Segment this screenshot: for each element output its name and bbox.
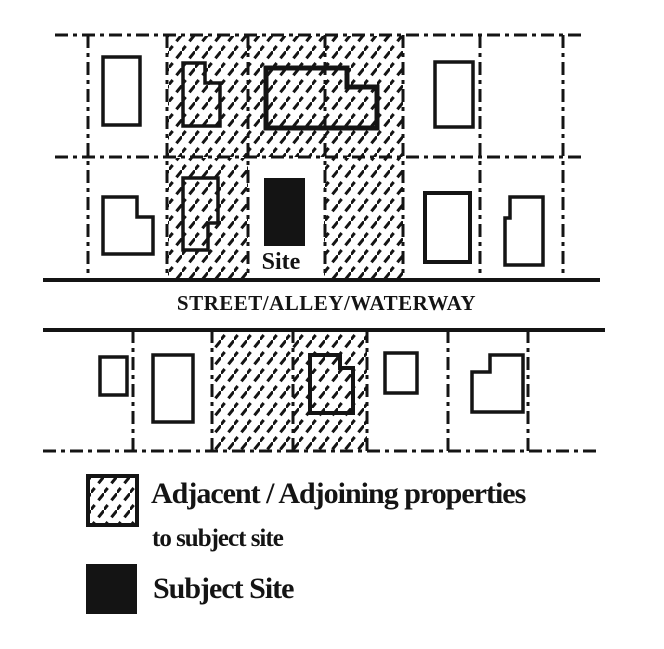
legend-adjacent-label-line1: Adjacent / Adjoining properties <box>151 477 525 510</box>
adjacent-area-north-bottomrow-right <box>324 158 403 279</box>
building-footprint <box>100 357 127 395</box>
subject-site-footprint <box>264 178 305 246</box>
legend-subject-swatch <box>86 564 137 614</box>
building-footprint <box>385 353 417 393</box>
building-footprint <box>505 197 543 265</box>
site-plan-diagram <box>0 0 664 649</box>
building-footprint <box>435 62 473 127</box>
site-plan-sketch-page: Site STREET/ALLEY/WATERWAY Adjacent / Ad… <box>0 0 664 649</box>
street-label: STREET/ALLEY/WATERWAY <box>156 292 497 315</box>
legend-adjacent-label-line2: to subject site <box>152 525 283 553</box>
building-footprint <box>425 193 470 262</box>
adjacent-area-north-toprow <box>168 36 403 157</box>
legend-subject-label: Subject Site <box>153 572 294 605</box>
building-footprint <box>103 57 140 125</box>
building-footprint <box>472 355 523 412</box>
adjacent-area-south <box>213 331 367 450</box>
legend-adjacent-swatch <box>88 476 137 525</box>
building-footprint <box>153 355 193 422</box>
diagram-layers <box>43 35 605 614</box>
building-footprint <box>103 197 153 254</box>
site-label: Site <box>241 249 321 275</box>
adjacent-area-north-bottomrow-left <box>168 158 248 279</box>
